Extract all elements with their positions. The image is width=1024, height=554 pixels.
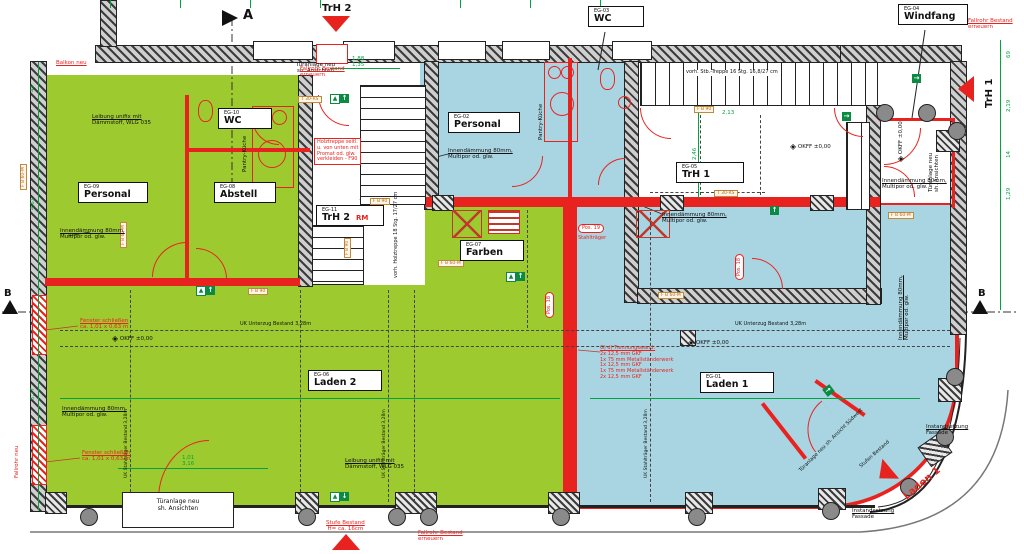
- entry-arrow-trh2-icon: [322, 16, 350, 32]
- exit-arrow-icon: →: [842, 112, 851, 121]
- fire-label-text: F B 60-M: [441, 261, 461, 266]
- level-value: OKFF ±0,00: [120, 336, 153, 342]
- column: [948, 122, 966, 140]
- dim-value: 2,13: [722, 110, 734, 116]
- note-pantry-blue: Pantry-Küche: [538, 104, 544, 140]
- dim-tick: [180, 0, 181, 8]
- note-instandsetzung: Instandsetzung Fassade: [926, 424, 968, 437]
- wc-toilet-icon: [198, 100, 213, 122]
- fire-label: T 30-RS: [714, 190, 738, 197]
- pos-label: Pos. 18: [546, 296, 552, 314]
- door-gap-trh2-top: [316, 44, 348, 64]
- note-unterzug: UK Unterzug Bestand 3,28m: [240, 322, 311, 328]
- fire-label-text: F B 90: [345, 241, 350, 255]
- room-label-wc-eg03: EG-03 WC: [588, 6, 644, 27]
- pos-label: Pos. 19: [582, 225, 600, 231]
- pos-marker-18: Pos. 18: [735, 254, 744, 280]
- room-name: Personal: [84, 190, 142, 200]
- dim-tick: [320, 0, 321, 8]
- fire-label-text: T 30-RS: [301, 97, 319, 102]
- note-line: ca. 1,01 x 0,63 m: [80, 324, 128, 330]
- fire-label: F B 60-M: [658, 292, 684, 299]
- note-line: erneuern: [418, 536, 463, 542]
- fire-label: F B 90: [248, 288, 268, 295]
- pier-pad: [810, 195, 834, 211]
- section-marker-b-left: B: [4, 288, 12, 299]
- room-label-farben-eg07: EG-07 Farben: [460, 240, 524, 261]
- wall-trh2-left: [298, 75, 313, 287]
- fire-label-text: F B 60-M: [891, 213, 911, 218]
- dim-line-laden1: [590, 398, 920, 399]
- beam-line-v: [760, 115, 761, 195]
- note-line: sh. Ansichten: [123, 506, 233, 513]
- room-name: Laden 2: [314, 378, 376, 388]
- sink-icon: [548, 66, 561, 79]
- level-marker: ◈ OKFF ±0,00: [896, 121, 905, 162]
- section-marker-b-right: B: [978, 288, 986, 299]
- exit-run-icon: ▲: [196, 286, 206, 296]
- column: [822, 502, 840, 520]
- fire-label: F B 60-M: [888, 212, 914, 219]
- exit-arrow-icon: ↑: [770, 206, 779, 215]
- window-closure-2: [32, 425, 47, 485]
- dim-line-trh1: [698, 110, 699, 198]
- section-flag-b-right-icon: [972, 300, 988, 314]
- window: [438, 41, 486, 60]
- exit-run-icon: ▲: [330, 94, 340, 104]
- note-unterzug: UK Unterzug Bestand 3,28m: [735, 322, 806, 328]
- dim-value: 14: [1006, 151, 1012, 158]
- dim-value: 2,19: [1006, 100, 1012, 112]
- room-name: WC: [224, 116, 266, 126]
- room-name: WC: [594, 14, 638, 24]
- room-name: TrH 2RM: [322, 213, 378, 223]
- note-line: erneuern: [300, 72, 345, 78]
- column: [876, 104, 894, 122]
- dim-tick: [460, 0, 461, 8]
- pos-label: Pos. 18: [736, 258, 742, 276]
- note-line: Multipor od. glw.: [904, 275, 910, 340]
- room-label-personal-eg02: EG-02 Personal: [448, 112, 520, 133]
- room-label-laden2-eg06: EG-06 Laden 2: [308, 370, 382, 391]
- note-stahl-dash: UK Stahlträger Bestand 3,28m: [382, 409, 387, 478]
- column: [552, 508, 570, 526]
- note-line: Multipor od. glw.: [662, 218, 727, 224]
- pos-marker-19: Pos. 19: [578, 224, 604, 233]
- wall-divider-laden: [565, 205, 577, 510]
- dim-value: 4,61: [30, 198, 36, 210]
- pos-marker-18: Pos. 18: [545, 292, 554, 318]
- note-line: ca. 1,01 x 0,63 m: [82, 456, 130, 462]
- window-closure-1: [32, 295, 47, 355]
- note-leibung-2: Leibung unifix mit Dämmstoff, WLG 035: [345, 458, 404, 471]
- exit-arrow-icon: ↑: [340, 94, 349, 103]
- entry-arrow-laden2-icon: [332, 534, 360, 550]
- column: [918, 104, 936, 122]
- stove-icon: [550, 92, 574, 116]
- dim-value: 5,77: [30, 388, 36, 400]
- window: [612, 41, 652, 60]
- pier-pad: [660, 195, 684, 211]
- room-label-wc-eg10: EG-10 WC: [218, 108, 272, 129]
- note-leibung: Leibung unifix mit Dämmstoff, WLG 035: [92, 114, 151, 127]
- room-label-trh2-eg11: EG-11 TrH 2RM: [316, 205, 384, 226]
- note-line: Fassade: [852, 514, 894, 520]
- beam-line: [60, 330, 950, 331]
- room-label-laden1-eg01: EG-01 Laden 1: [700, 372, 774, 393]
- pos-19-sub: Stahlträger: [578, 236, 606, 242]
- exit-arrow-icon: →: [912, 74, 921, 83]
- wall-balcony-stub: [100, 0, 117, 47]
- note-line: verkleiden - F90: [317, 157, 358, 163]
- note-pantry-green: Pantry-Küche: [242, 136, 248, 172]
- dim-value: 69: [1006, 51, 1012, 58]
- fire-label: F B 90: [344, 238, 351, 258]
- fire-label: F B 90: [694, 106, 714, 113]
- note-line: sh. Ansichten: [934, 153, 940, 192]
- level-diamond-icon: ◈: [112, 334, 118, 343]
- window: [502, 41, 550, 60]
- note-fallrohr: Fallrohr Bestand erneuern: [418, 530, 463, 543]
- pier-pad: [45, 492, 67, 514]
- note-line: Multipor od. glw.: [60, 234, 125, 240]
- floor-plan: ▲ ↑ ▲ ↑ ▲ ↓ ▲ ↑ ↑ → → → 47 4,61 5,77 69 …: [0, 0, 1024, 554]
- note-innendaemmung: Innendämmung 80mm, Multipor od. glw.: [60, 228, 125, 241]
- entry-arrow-trh1-label: TrH 1: [984, 79, 996, 108]
- note-line: Multipor od. glw.: [448, 154, 513, 160]
- room-name: Personal: [454, 120, 514, 130]
- note-line: 2x 12,5 mm GKF: [600, 375, 673, 381]
- level-marker: ◈ OKFF ±0,00: [112, 334, 153, 343]
- fire-label-text: F B 60-M: [21, 167, 26, 187]
- sink-icon: [561, 66, 574, 79]
- room-suffix: RM: [356, 214, 368, 222]
- note-fallrohr-neu: Fallrohr neu: [14, 446, 20, 478]
- note-line: Fassade: [926, 430, 968, 436]
- fire-label-text: F B 90: [251, 289, 265, 294]
- beam-line: [60, 346, 950, 347]
- fire-label-text: F B 90: [697, 107, 711, 112]
- dim-value: 1,29: [1006, 188, 1012, 200]
- level-value: OKFF ±0,00: [798, 144, 831, 150]
- note-line: H= ca. 16cm: [326, 526, 365, 532]
- room-name: Abstell: [220, 190, 270, 200]
- fire-label-text: F B 90: [373, 199, 387, 204]
- room-name: Windfang: [904, 12, 962, 22]
- room-label-abstell-eg08: EG-08 Abstell: [214, 182, 276, 203]
- level-value: OKFF ±0,00: [898, 121, 904, 154]
- room-name: Farben: [466, 248, 518, 258]
- level-diamond-icon: ◈: [688, 338, 694, 347]
- dim-tick: [250, 0, 251, 8]
- note-stahl-dash: UK Stahlträger Bestand 3,28m: [124, 409, 129, 478]
- shaft-x-box: [452, 210, 482, 238]
- level-value: OKFF ±0,00: [696, 340, 729, 346]
- fire-label-text: T 30-RS: [717, 191, 735, 196]
- note-line: erneuern: [968, 24, 1013, 30]
- entry-arrow-trh2-label: TrH 2: [322, 3, 351, 15]
- note-fallrohr: Fallrohr Bestand erneuern: [300, 66, 345, 79]
- section-flag-a-icon: [222, 10, 238, 26]
- beam-line: [650, 192, 765, 193]
- dim-tick: [110, 0, 111, 8]
- wc-sink-icon: [618, 96, 631, 109]
- note-holztreppe-f90: Holztreppe seitl. u. von unten mit Proma…: [314, 138, 361, 165]
- stairs-trh2-lower: [312, 225, 364, 285]
- room-name-text: TrH 2: [322, 212, 350, 223]
- room-label-trh1-eg05: EG-05 TrH 1: [676, 162, 744, 183]
- exit-arrow-icon: ↓: [340, 492, 349, 501]
- column: [420, 508, 438, 526]
- exit-arrow-icon: ↑: [206, 286, 215, 295]
- note-holztreppe-vorh: vorh. Holztreppe 18 Stg. 17/27 cm: [394, 192, 400, 278]
- dim-line-east: [1000, 40, 1001, 310]
- note-trennwand: G) d) Trennungswand: 2x 12,5 mm GKF 1x 7…: [600, 346, 673, 381]
- column: [688, 508, 706, 526]
- exit-run-icon: ▲: [506, 272, 516, 282]
- dim-value: 2,46: [692, 148, 698, 160]
- stairs-trh2-upper: [360, 85, 426, 205]
- entry-arrow-trh1-icon: [958, 76, 974, 102]
- column: [80, 508, 98, 526]
- room-name: TrH 1: [682, 170, 738, 180]
- dim-line-laden2: [60, 398, 560, 399]
- wall-green-rooms-south: [45, 278, 300, 286]
- note-innendaemmung: Innendämmung 80mm, Multipor od. glw.: [662, 212, 727, 225]
- note-balkon-neu: Balkon neu: [56, 60, 87, 66]
- dim-tick: [530, 0, 531, 8]
- dim-line-west: [38, 62, 39, 510]
- note-stahl-dash: UK Stahlträger Bestand 3,28m: [644, 409, 649, 478]
- wall-north-right: [840, 45, 962, 63]
- dim-value: 47: [30, 85, 36, 92]
- pier-pad: [432, 195, 454, 211]
- section-marker-a: A: [243, 8, 253, 23]
- note-fallrohr: Fallrohr Bestand erneuern: [968, 18, 1013, 31]
- room-name: Laden 1: [706, 380, 768, 390]
- column: [388, 508, 406, 526]
- note-stb-treppe: vorh. Stb.-Treppe 16 Stg. 16,8/27 cm: [684, 70, 780, 76]
- room-label-personal-eg09: EG-09 Personal: [78, 182, 148, 203]
- window: [343, 41, 395, 60]
- note-fenster-schliessen: Fenster schließen ca. 1,01 x 0,63 m: [82, 450, 130, 463]
- beam-line-v: [130, 290, 131, 502]
- note-tueranlage-windfang: Türanlage neu sh. Ansichten: [928, 153, 941, 192]
- exit-arrow-icon: ↑: [516, 272, 525, 281]
- beam-line-v: [527, 210, 528, 328]
- note-line: Dämmstoff, WLG 035: [345, 464, 404, 470]
- note-instandsetzung: Instandsetzung Fassade: [852, 508, 894, 521]
- exit-run-icon: ▲: [330, 492, 340, 502]
- wc-toilet-icon: [600, 68, 615, 90]
- wall-trh2-right: [424, 61, 439, 210]
- note-innendaemmung: Innendämmung 80mm, Multipor od. glw.: [898, 275, 911, 340]
- column: [298, 508, 316, 526]
- note-tueranlage-bottom: Türanlage neu sh. Ansichten: [122, 492, 234, 528]
- duct-grille: [488, 210, 520, 234]
- fire-label: T 30-RS: [298, 96, 322, 103]
- level-diamond-icon: ◈: [896, 156, 905, 162]
- room-label-windfang-eg04: EG-04 Windfang: [898, 4, 968, 25]
- note-fenster-schliessen: Fenster schließen ca. 1,01 x 0,63 m: [80, 318, 128, 331]
- section-flag-b-left-icon: [2, 300, 18, 314]
- beam-line-v: [414, 290, 415, 502]
- fire-label: F B 60-M: [20, 164, 27, 190]
- note-line: Dämmstoff, WLG 035: [92, 120, 151, 126]
- dim-value: 1,35: [352, 62, 364, 68]
- note-innendaemmung: Innendämmung 80mm, Multipor od. glw.: [448, 148, 513, 161]
- note-stufe-bestand: Stufe Bestand H= ca. 16cm: [326, 520, 365, 533]
- window: [253, 41, 313, 60]
- fire-label-text: F B 60-M: [661, 293, 681, 298]
- column: [946, 368, 964, 386]
- level-marker: ◈ OKFF ±0,00: [790, 142, 831, 151]
- level-diamond-icon: ◈: [790, 142, 796, 151]
- note-innendaemmung: Innendämmung 80mm, Multipor od. glw.: [62, 406, 127, 419]
- level-marker: ◈ OKFF ±0,00: [688, 338, 729, 347]
- note-line: Multipor od. glw.: [62, 412, 127, 418]
